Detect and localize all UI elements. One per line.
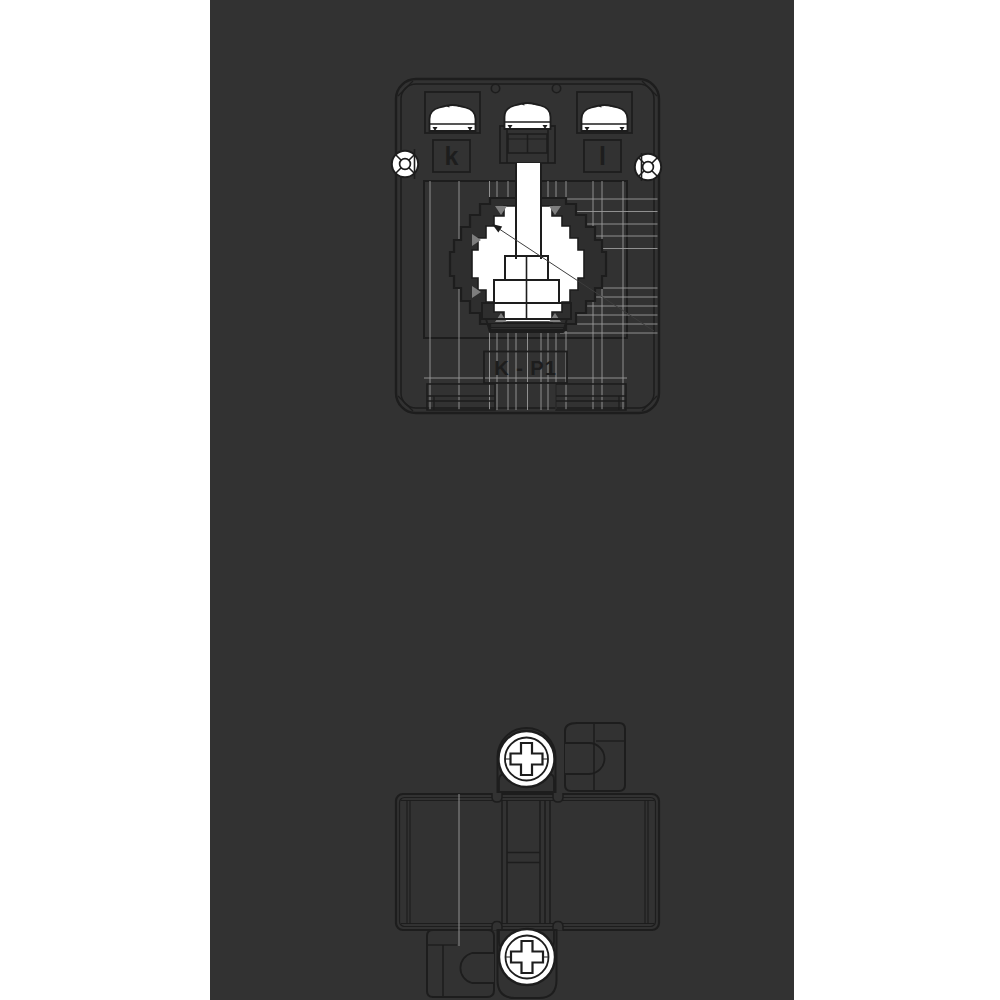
polarity-label-text: K - P1: [494, 357, 557, 379]
top-hole-right: [552, 84, 560, 92]
polarity-label-plate: K - P1: [484, 352, 567, 384]
terminal-label-l: l: [584, 140, 621, 172]
terminal-screw-right-icon: [577, 92, 632, 133]
mounting-ear-left-icon: [392, 149, 418, 179]
side-view-drawing: [396, 723, 659, 998]
mounting-screw-top-icon: [498, 728, 556, 792]
top-hole-left: [491, 84, 499, 92]
din-hook-bottom-icon: [427, 930, 494, 997]
bottom-clip-tabs: [427, 384, 626, 410]
page: k l K - P1: [0, 0, 1000, 1000]
center-column: [502, 801, 550, 924]
technical-drawing: k l K - P1: [0, 0, 1000, 1000]
side-body: [396, 793, 659, 946]
terminal-label-l-text: l: [599, 142, 606, 170]
front-view-drawing: k l K - P1: [392, 79, 661, 413]
mounting-ear-right-icon: [635, 153, 661, 181]
terminal-label-k: k: [433, 140, 470, 172]
center-clamp-screw-icon: [500, 103, 555, 163]
mounting-screw-bottom-icon: [498, 929, 557, 998]
din-hook-top-icon: [565, 723, 625, 791]
terminal-screw-left-icon: [425, 92, 480, 133]
terminal-label-k-text: k: [445, 142, 459, 170]
